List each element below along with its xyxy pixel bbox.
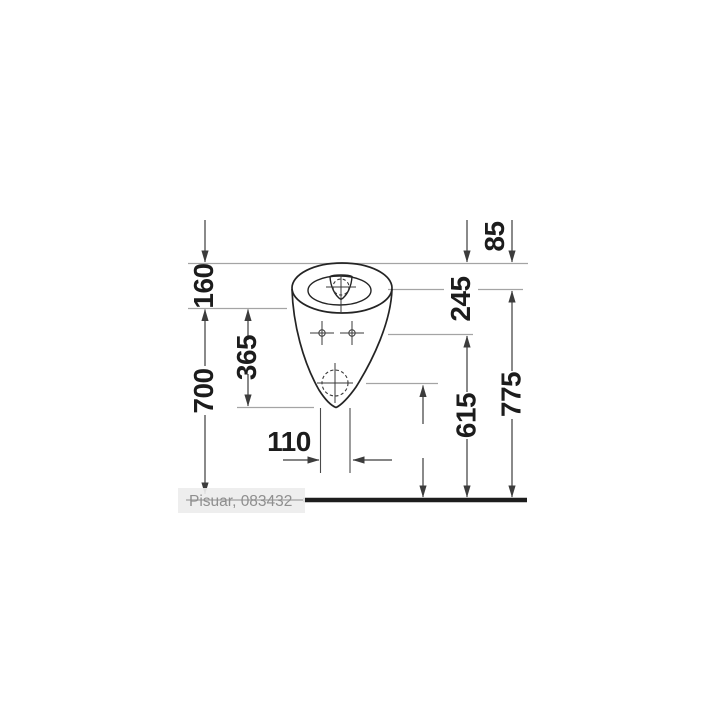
dimension-label-775: 775: [496, 372, 527, 417]
dimension-label-160: 160: [188, 263, 219, 308]
dimension-label-85: 85: [479, 221, 510, 251]
caption-text: Pisuar, 083432: [189, 493, 292, 510]
drawing-canvas: Pisuar, 083432 160 700 365 245 615 775 8…: [0, 0, 720, 720]
dimension-label-700: 700: [188, 368, 219, 413]
technical-drawing: Pisuar, 083432 160 700 365 245 615 775 8…: [0, 0, 720, 720]
dimension-label-615: 615: [451, 393, 482, 438]
dimension-label-245: 245: [445, 276, 476, 321]
dimension-label-110: 110: [267, 426, 311, 457]
basin-inner-ellipse: [308, 276, 371, 305]
dimension-label-365: 365: [231, 335, 262, 380]
